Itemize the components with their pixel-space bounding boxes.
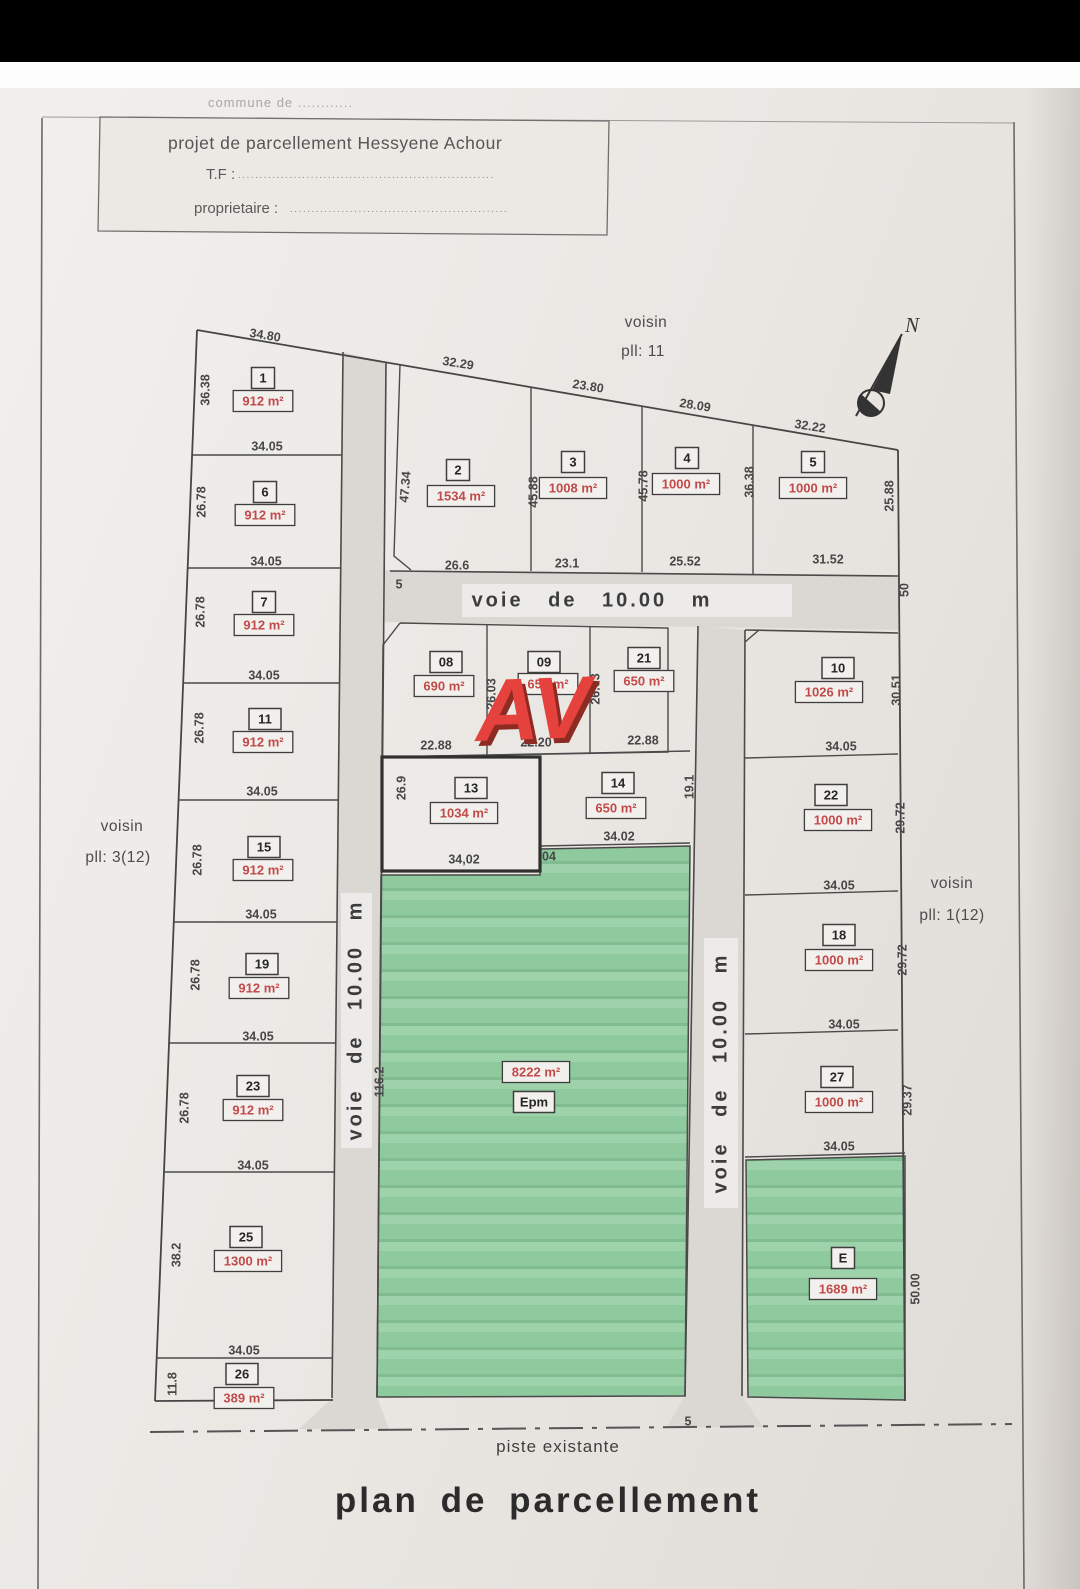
dim-label: 116.2: [372, 1067, 386, 1098]
dim-label: 34.05: [250, 554, 281, 568]
parcel-number: 18: [832, 927, 846, 942]
parcel-number: 22: [824, 787, 838, 802]
dim-label: 19.1: [682, 775, 696, 799]
parcel-number: Epm: [520, 1094, 548, 1109]
parcel-15: 15912 m²: [233, 837, 293, 881]
parcel-5: 51000 m²: [779, 452, 846, 499]
parcel-area: 912 m²: [232, 1102, 274, 1117]
dim-label: 5: [396, 577, 403, 591]
dim-label: 34.05: [242, 1029, 273, 1043]
dim-label: 26.78: [177, 1092, 191, 1123]
dim-label: 34.05: [228, 1343, 259, 1357]
road-vertical-right-label: voie de 10.00 m: [709, 953, 731, 1194]
parcel-number: 2: [454, 462, 461, 477]
voisin-right-line1: voisin: [931, 875, 974, 892]
parcel-area: 690 m²: [423, 678, 465, 693]
parcel-area: 1534 m²: [437, 488, 486, 503]
dim-label: 29.72: [893, 802, 907, 833]
commune-line: commune de ............: [208, 95, 353, 110]
parcel-area: 1000 m²: [815, 952, 864, 967]
parcel-23: 23912 m²: [223, 1076, 283, 1121]
dim-label: 34.02: [603, 829, 634, 843]
parcel-area: 912 m²: [244, 507, 286, 522]
parcel-area: 1000 m²: [789, 480, 838, 495]
parcel-number: 23: [246, 1078, 260, 1093]
dim-label: 25.88: [882, 480, 896, 511]
parcel-number: 25: [239, 1229, 253, 1244]
parcel-area: 1000 m²: [814, 812, 863, 827]
dim-label: 26.78: [190, 844, 204, 875]
dim-label: 34.05: [251, 439, 282, 453]
dim-label: 50.00: [908, 1273, 922, 1304]
dim-label: 26.78: [193, 596, 207, 627]
parcel-27: 271000 m²: [805, 1067, 872, 1113]
voisin-right-line2: pll: 1(12): [919, 907, 984, 924]
dim-label: 34.05: [828, 1017, 859, 1031]
voisin-top-line2: pll: 11: [621, 343, 665, 360]
parcel-10: 101026 m²: [795, 658, 862, 703]
parcel-number: 26: [235, 1366, 249, 1381]
dim-label: 36.38: [742, 466, 756, 497]
dim-label: 34.05: [237, 1158, 268, 1172]
parcel-area: 1034 m²: [440, 805, 489, 820]
parcel-number: 6: [261, 484, 268, 499]
parcel-area: 8222 m²: [512, 1064, 561, 1079]
parcel-21: 21650 m²: [614, 648, 674, 692]
dim-label: 31.52: [812, 552, 843, 566]
dim-label: 11.8: [165, 1372, 179, 1396]
parcel-08: 08690 m²: [414, 652, 474, 697]
av-watermark: AV AV: [471, 657, 603, 765]
dim-label: 34.05: [825, 739, 856, 753]
tf-label: T.F :: [206, 166, 235, 183]
dim-label: 26.6: [445, 558, 469, 572]
parcel-number: 15: [257, 839, 271, 854]
dim-label: 22.88: [627, 733, 658, 747]
dim-label: 50: [897, 583, 911, 597]
voisin-left-line2: pll: 3(12): [85, 849, 150, 866]
dim-label: 47.34: [397, 471, 414, 503]
dim-label: 23.80: [572, 377, 605, 396]
parcel-number: 5: [809, 454, 816, 469]
project-title: projet de parcellement Hessyene Achour: [168, 133, 502, 153]
parcel-1: 1912 m²: [233, 368, 293, 412]
voisin-left-line1: voisin: [101, 818, 144, 835]
parcel-number: 4: [683, 450, 691, 465]
parcelling-plan-drawing: commune de ............ projet de parcel…: [0, 0, 1080, 1589]
parcel-area: 912 m²: [242, 393, 284, 408]
parcel-14: 14650 m²: [586, 773, 646, 819]
parcel-area: 1000 m²: [815, 1094, 864, 1109]
dim-label: 45.78: [636, 470, 650, 501]
parcel-7: 7912 m²: [234, 592, 294, 636]
voisin-top-line1: voisin: [625, 314, 668, 331]
parcel-number: 14: [611, 775, 626, 790]
piste-label: piste existante: [496, 1437, 620, 1456]
parcel-number: 7: [260, 594, 267, 609]
parcel-area: 912 m²: [242, 862, 284, 877]
parcel-area: 1008 m²: [549, 480, 598, 495]
dim-label: 45.88: [526, 476, 540, 507]
parcel-area: 1000 m²: [662, 476, 711, 491]
parcel-area: 650 m²: [623, 673, 665, 688]
parcel-22: 221000 m²: [804, 785, 871, 831]
north-arrowhead: [872, 334, 902, 394]
parcel-number: 27: [830, 1069, 844, 1084]
parcel-6: 6912 m²: [235, 482, 295, 526]
dim-label: 34.05: [245, 907, 276, 921]
parcel-area: 1026 m²: [805, 684, 854, 699]
parcel-number: 19: [255, 956, 269, 971]
av-watermark-text: AV: [471, 657, 598, 760]
parcel-area: 912 m²: [242, 734, 284, 749]
dim-label: 26.78: [188, 959, 202, 990]
dim-label: 30.51: [889, 674, 903, 705]
parcel-26: 26389 m²: [214, 1364, 274, 1409]
dim-label: 29.72: [895, 944, 909, 975]
title-block: commune de ............ projet de parcel…: [98, 95, 609, 235]
dim-label: 38.2: [169, 1243, 183, 1267]
parcel-number: 1: [259, 370, 266, 385]
parcel-number: 08: [439, 654, 453, 669]
parcel-number: 13: [464, 780, 478, 795]
road-horizontal-label: voie de 10.00 m: [472, 589, 713, 611]
green-space-epm: [377, 846, 690, 1397]
parcel-number: 10: [831, 660, 845, 675]
screenshot-root: commune de ............ projet de parcel…: [0, 0, 1080, 1589]
dim-label: 22.88: [420, 738, 451, 752]
dim-label: 32.29: [442, 354, 475, 373]
piste-existante: piste existante: [150, 1424, 1012, 1456]
north-arrow: N: [856, 313, 920, 416]
dim-label: 34.05: [246, 784, 277, 798]
parcel-area: 912 m²: [238, 980, 280, 995]
owner-label: proprietaire :: [194, 200, 278, 217]
owner-dotted-line: ........................................…: [290, 204, 508, 215]
parcel-area: 650 m²: [595, 800, 637, 815]
parcel-number: 3: [569, 454, 576, 469]
dim-label: 34.80: [249, 326, 282, 345]
parcel-area: 1300 m²: [224, 1253, 273, 1268]
dim-label: 34.05: [248, 668, 279, 682]
dim-label: 26.78: [194, 486, 208, 517]
plan-title: plan de parcellement: [335, 1481, 761, 1520]
dim-label: 36.38: [198, 374, 212, 405]
dim-label: 29.37: [900, 1084, 914, 1115]
parcel-19: 19912 m²: [229, 954, 289, 999]
parcel-number: E: [839, 1250, 848, 1265]
dim-label: 26.9: [394, 776, 408, 800]
road-vertical-left-label: voie de 10.00 m: [344, 900, 366, 1141]
parcel-11: 11912 m²: [233, 709, 293, 753]
north-letter: N: [904, 313, 920, 337]
dim-label: 34.05: [823, 1139, 854, 1153]
dim-label: 28.09: [679, 396, 712, 415]
dim-label: 23.1: [555, 556, 579, 570]
dim-label: 34.05: [823, 878, 854, 892]
dim-label: 25.52: [669, 554, 700, 568]
parcel-area: 912 m²: [243, 617, 285, 632]
parcel-2: 21534 m²: [427, 460, 494, 507]
parcel-number: 21: [637, 650, 651, 665]
parcel-4: 41000 m²: [652, 448, 719, 495]
road-flare-right: [667, 1396, 763, 1427]
parcel-18: 181000 m²: [805, 925, 872, 971]
parcel-area: 389 m²: [223, 1390, 265, 1405]
dim-label: 26.78: [192, 712, 206, 743]
parcel-25: 251300 m²: [214, 1227, 281, 1272]
dim-label: 04: [542, 849, 556, 863]
parcel-3: 31008 m²: [539, 452, 606, 499]
dim-label: 34,02: [448, 852, 479, 866]
road-flare-left: [299, 1397, 389, 1429]
tf-dotted-line: ........................................…: [238, 170, 495, 181]
parcel-area: 1689 m²: [819, 1281, 868, 1296]
parcel-number: 11: [258, 711, 272, 726]
